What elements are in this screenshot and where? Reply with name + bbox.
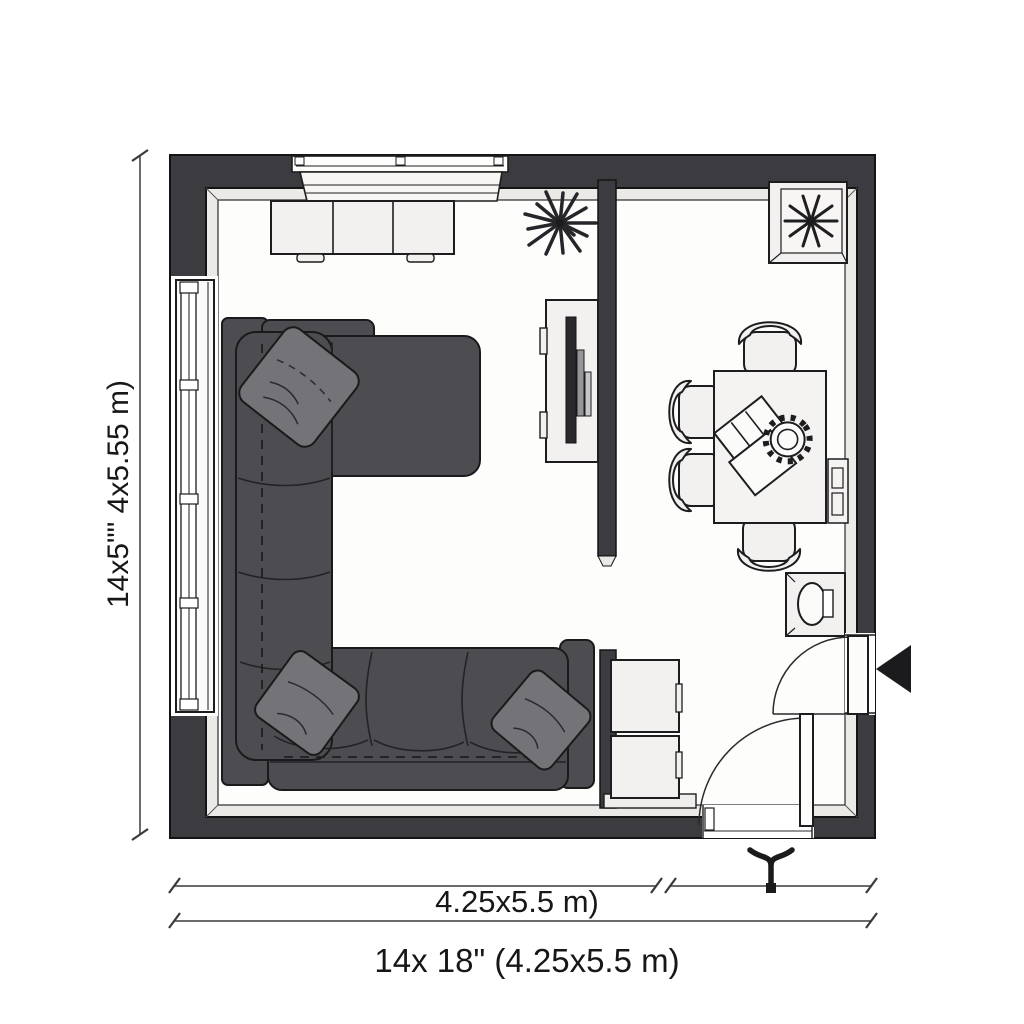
floor-plan-drawing (0, 0, 1024, 1024)
dimension-label-overall: 14x 18" (4.25x5.5 m) (374, 942, 679, 980)
flat-tv-icon (566, 317, 576, 443)
dining-table (710, 371, 826, 523)
floor-plan-page: 14x5"" 4x5.55 m) 4.25x5.5 m) 14x 18" (4.… (0, 0, 1024, 1024)
tv-stand (540, 300, 598, 462)
side-window (171, 276, 218, 716)
entrance-arrow-icon (876, 645, 911, 693)
dimension-label-width: 4.25x5.5 m) (435, 884, 599, 920)
sideboard (271, 201, 454, 262)
washbasin-cabinet (786, 573, 845, 636)
wall-panel (828, 459, 848, 523)
dimension-label-side: 14x5"" 4x5.55 m) (102, 380, 136, 608)
partition-wall-upper (598, 180, 616, 566)
corner-planter (769, 182, 847, 263)
wall-niche (292, 156, 508, 201)
